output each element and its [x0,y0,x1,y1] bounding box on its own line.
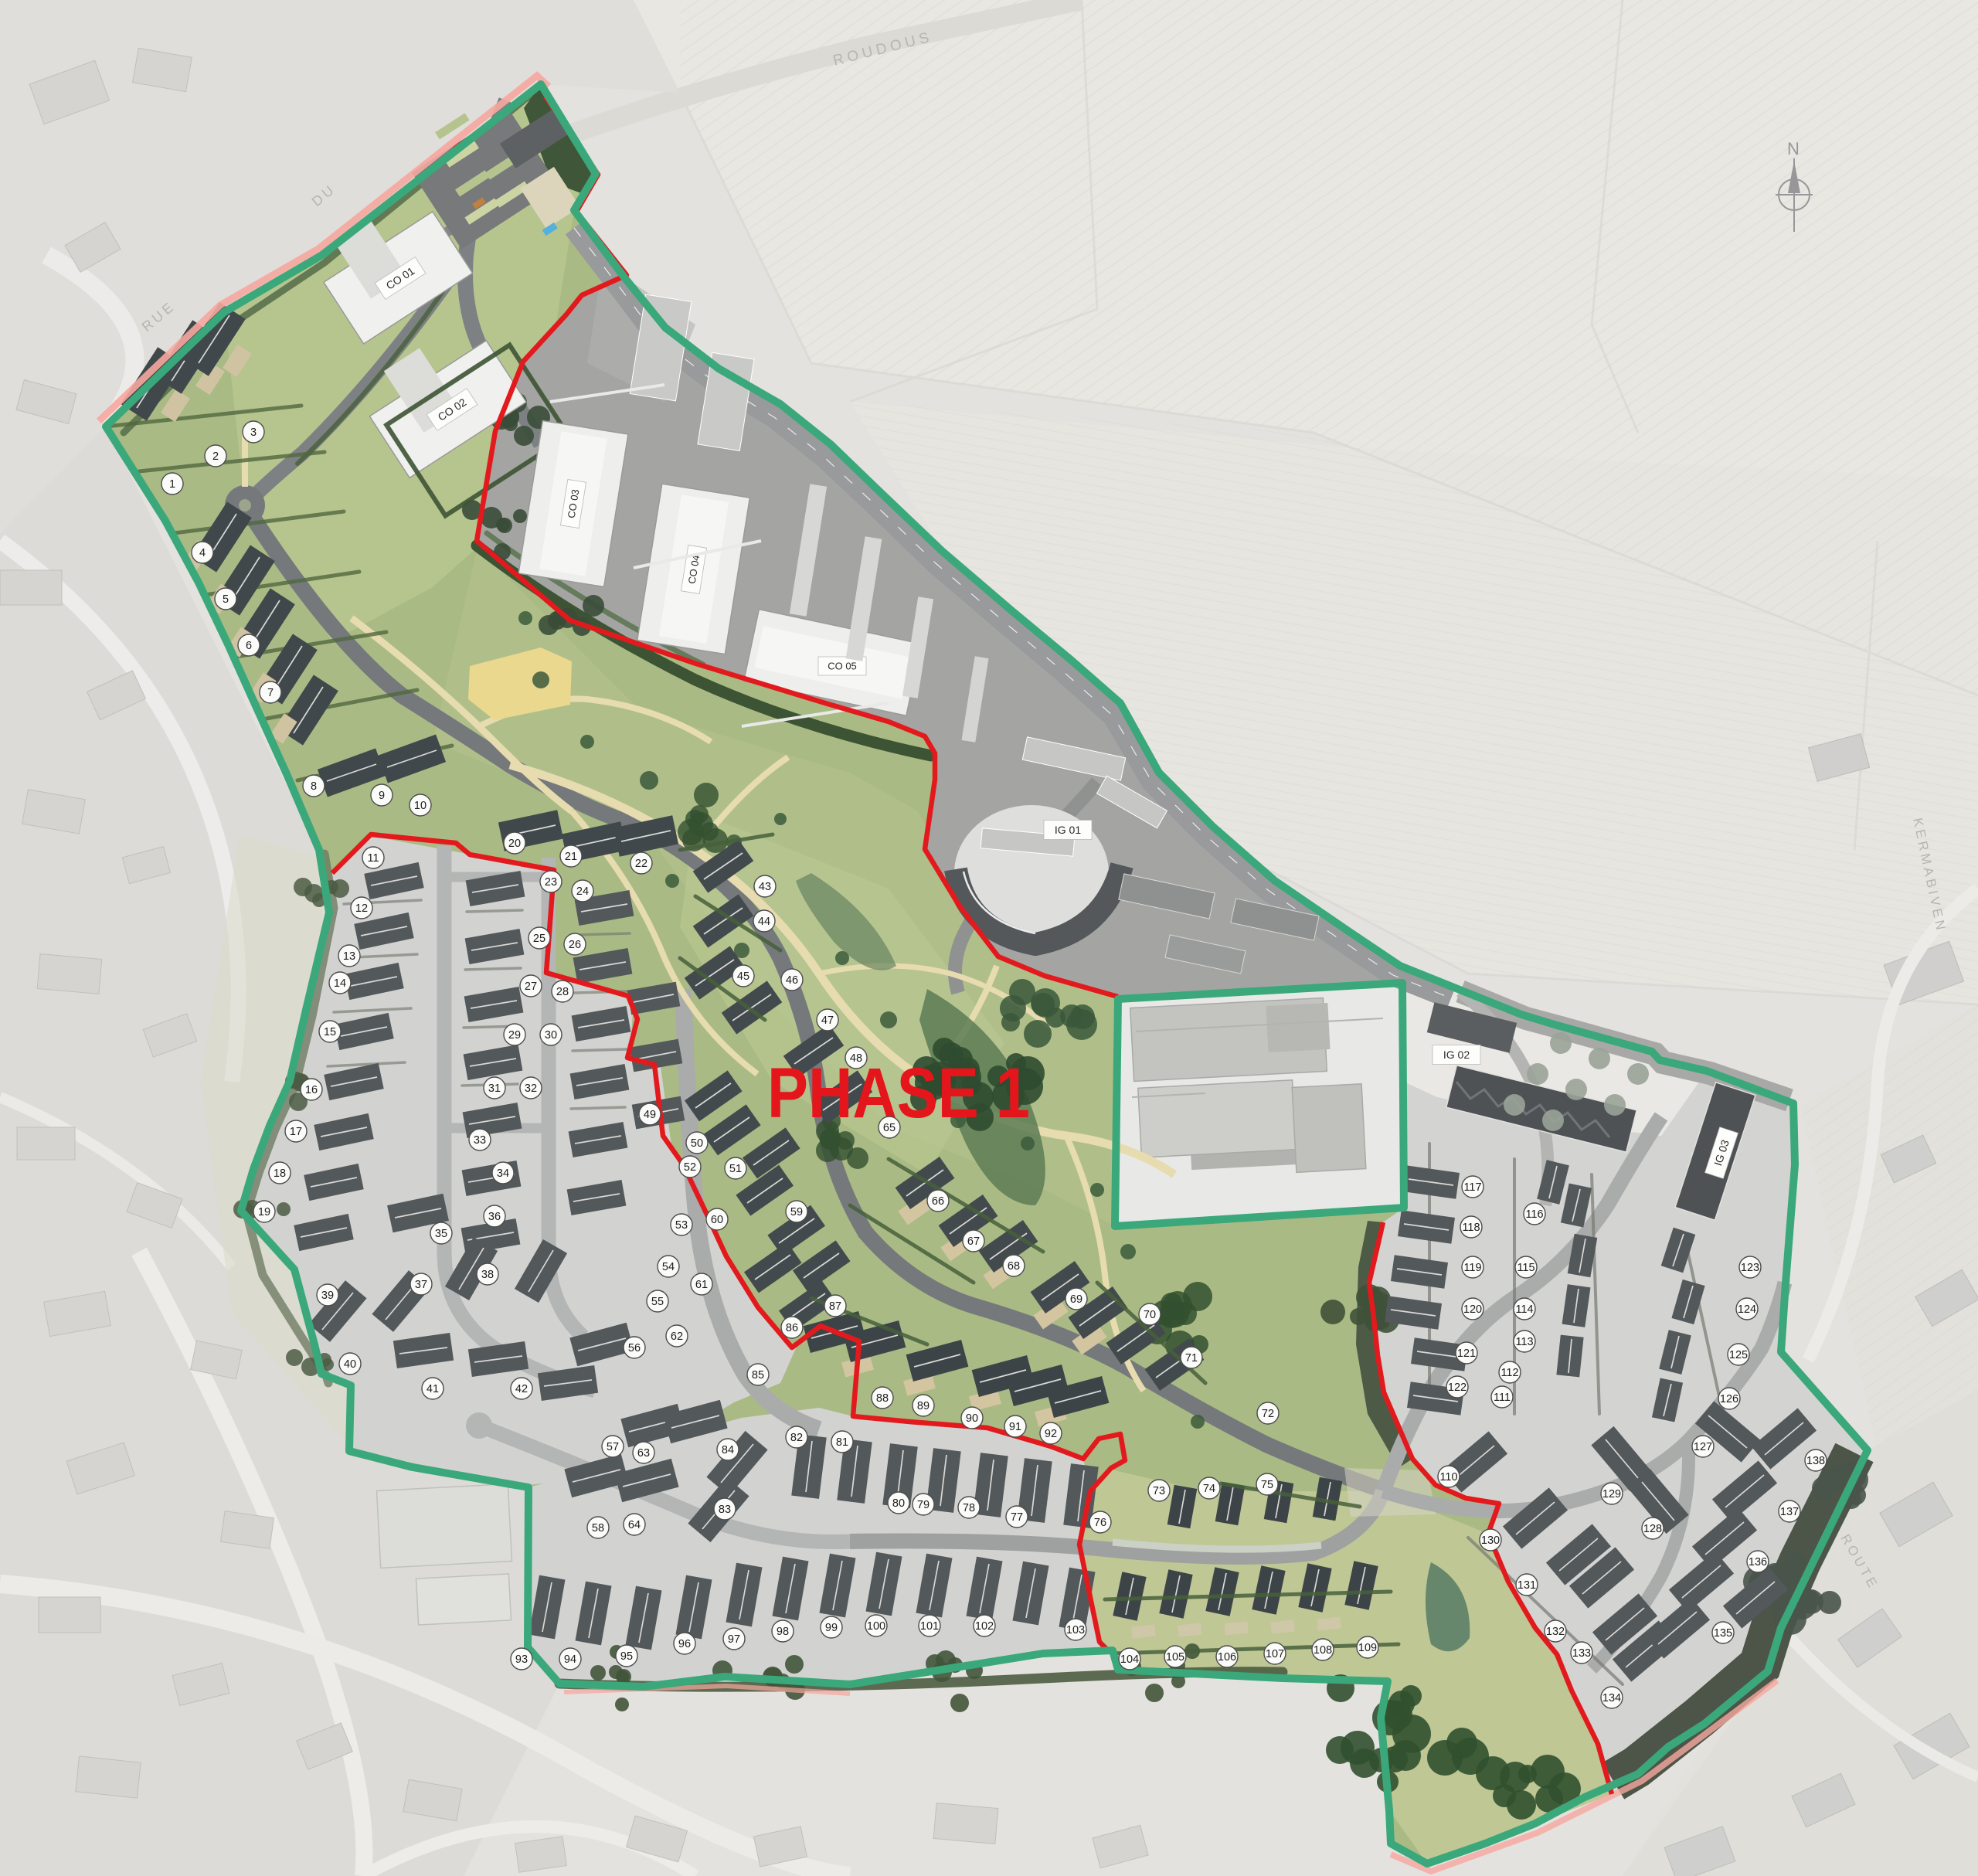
svg-text:93: 93 [515,1653,528,1666]
svg-text:8: 8 [311,780,317,793]
svg-text:119: 119 [1463,1262,1481,1274]
svg-text:52: 52 [684,1161,696,1174]
svg-text:57: 57 [607,1441,619,1453]
svg-text:83: 83 [719,1504,731,1516]
svg-text:115: 115 [1517,1262,1534,1274]
svg-text:23: 23 [545,876,557,889]
svg-text:5: 5 [223,593,229,606]
svg-text:95: 95 [620,1650,633,1663]
svg-text:87: 87 [829,1300,841,1313]
svg-text:104: 104 [1120,1653,1139,1666]
svg-text:69: 69 [1070,1293,1082,1306]
svg-text:78: 78 [963,1502,975,1514]
svg-text:114: 114 [1515,1303,1533,1316]
svg-text:126: 126 [1720,1393,1738,1405]
svg-text:28: 28 [556,986,569,998]
svg-text:36: 36 [488,1211,501,1223]
svg-text:123: 123 [1741,1262,1759,1274]
svg-text:41: 41 [427,1383,439,1395]
svg-text:31: 31 [488,1082,501,1095]
svg-text:13: 13 [343,950,355,963]
svg-text:25: 25 [533,933,545,945]
svg-text:6: 6 [246,640,252,652]
svg-text:67: 67 [967,1235,980,1248]
svg-text:19: 19 [258,1206,270,1218]
svg-text:26: 26 [569,939,581,951]
svg-text:116: 116 [1525,1208,1543,1221]
svg-text:133: 133 [1572,1647,1591,1660]
svg-text:24: 24 [576,885,589,898]
svg-text:47: 47 [821,1014,834,1027]
svg-text:77: 77 [1011,1511,1023,1524]
svg-text:12: 12 [355,902,368,915]
svg-text:110: 110 [1439,1471,1457,1483]
svg-text:32: 32 [525,1082,537,1095]
svg-text:70: 70 [1144,1309,1156,1321]
svg-text:33: 33 [474,1134,486,1147]
svg-text:37: 37 [415,1279,427,1291]
svg-text:109: 109 [1358,1642,1377,1654]
svg-text:51: 51 [729,1163,742,1175]
svg-text:74: 74 [1203,1483,1215,1495]
svg-text:85: 85 [752,1369,764,1382]
svg-text:96: 96 [678,1638,691,1650]
svg-text:111: 111 [1494,1392,1511,1404]
svg-text:100: 100 [867,1620,885,1633]
svg-text:84: 84 [722,1444,734,1456]
svg-text:16: 16 [305,1084,318,1096]
svg-text:3: 3 [250,427,257,439]
svg-text:1: 1 [169,478,175,491]
svg-text:27: 27 [525,980,537,993]
svg-text:30: 30 [545,1029,557,1042]
svg-text:43: 43 [759,881,771,893]
svg-text:34: 34 [497,1167,509,1180]
svg-text:44: 44 [758,916,770,928]
svg-text:50: 50 [691,1137,703,1150]
svg-text:89: 89 [917,1400,930,1412]
svg-text:135: 135 [1714,1627,1732,1640]
svg-text:81: 81 [836,1436,848,1449]
svg-text:130: 130 [1481,1534,1500,1547]
svg-text:IG 01: IG 01 [1055,824,1081,836]
svg-text:97: 97 [728,1633,740,1646]
svg-text:86: 86 [786,1322,798,1334]
svg-text:122: 122 [1448,1382,1467,1394]
svg-text:125: 125 [1729,1349,1748,1361]
svg-text:127: 127 [1694,1441,1712,1453]
svg-text:103: 103 [1066,1624,1085,1636]
svg-text:38: 38 [481,1269,494,1281]
svg-text:82: 82 [790,1432,803,1444]
svg-text:61: 61 [695,1279,708,1291]
svg-text:65: 65 [883,1122,896,1134]
svg-text:IG 02: IG 02 [1443,1048,1470,1061]
svg-text:102: 102 [975,1620,994,1633]
svg-text:137: 137 [1780,1506,1799,1518]
svg-text:60: 60 [711,1214,723,1226]
svg-text:105: 105 [1166,1651,1184,1664]
svg-text:59: 59 [790,1206,803,1218]
svg-text:39: 39 [321,1290,334,1302]
svg-text:29: 29 [508,1029,521,1042]
svg-text:20: 20 [508,838,521,850]
svg-text:2: 2 [212,450,219,463]
svg-text:18: 18 [274,1167,286,1180]
svg-text:15: 15 [324,1026,336,1038]
svg-text:101: 101 [920,1620,939,1633]
svg-text:58: 58 [592,1522,604,1534]
svg-text:117: 117 [1463,1181,1481,1194]
svg-text:134: 134 [1602,1692,1621,1704]
svg-text:107: 107 [1266,1648,1284,1660]
svg-text:128: 128 [1643,1523,1662,1535]
svg-text:CO 05: CO 05 [828,661,857,672]
svg-text:91: 91 [1009,1421,1021,1433]
svg-text:62: 62 [671,1331,683,1343]
svg-text:124: 124 [1738,1303,1756,1316]
svg-text:136: 136 [1749,1556,1767,1568]
svg-text:76: 76 [1094,1517,1106,1529]
svg-text:48: 48 [850,1052,862,1065]
svg-text:118: 118 [1462,1222,1480,1234]
svg-text:21: 21 [565,851,577,863]
svg-text:11: 11 [367,852,379,865]
svg-text:120: 120 [1463,1303,1482,1316]
svg-text:66: 66 [932,1195,944,1208]
svg-text:88: 88 [876,1392,889,1405]
svg-text:112: 112 [1500,1367,1518,1379]
svg-text:99: 99 [825,1622,838,1634]
svg-text:132: 132 [1546,1626,1565,1638]
svg-text:53: 53 [675,1219,688,1232]
svg-text:40: 40 [344,1358,356,1371]
svg-text:14: 14 [334,977,346,990]
svg-text:138: 138 [1806,1455,1825,1467]
svg-text:80: 80 [892,1497,905,1510]
svg-text:92: 92 [1045,1428,1057,1440]
svg-text:55: 55 [651,1296,664,1308]
svg-text:75: 75 [1261,1479,1273,1491]
svg-text:4: 4 [199,547,206,559]
svg-text:131: 131 [1517,1579,1536,1592]
svg-text:64: 64 [628,1519,641,1531]
svg-text:90: 90 [966,1412,978,1425]
svg-text:106: 106 [1218,1651,1236,1664]
svg-text:54: 54 [662,1261,675,1273]
svg-text:79: 79 [917,1499,930,1511]
svg-text:7: 7 [267,687,274,699]
svg-text:49: 49 [644,1109,656,1121]
svg-text:73: 73 [1153,1485,1165,1497]
svg-text:N: N [1787,139,1800,158]
svg-text:98: 98 [777,1626,789,1638]
svg-text:113: 113 [1515,1336,1533,1348]
svg-text:46: 46 [786,974,798,987]
svg-text:63: 63 [637,1447,650,1460]
svg-text:17: 17 [290,1126,302,1138]
svg-text:68: 68 [1008,1260,1020,1273]
svg-text:45: 45 [737,970,749,983]
svg-text:108: 108 [1314,1644,1332,1657]
svg-text:72: 72 [1262,1408,1274,1420]
svg-text:129: 129 [1602,1488,1621,1500]
svg-text:35: 35 [435,1228,447,1240]
svg-text:10: 10 [414,800,427,812]
svg-text:121: 121 [1457,1348,1476,1360]
svg-text:71: 71 [1185,1352,1198,1365]
svg-text:56: 56 [628,1342,641,1354]
svg-text:94: 94 [564,1653,576,1666]
svg-text:22: 22 [635,858,647,870]
svg-text:42: 42 [515,1383,528,1395]
svg-text:9: 9 [379,790,385,802]
